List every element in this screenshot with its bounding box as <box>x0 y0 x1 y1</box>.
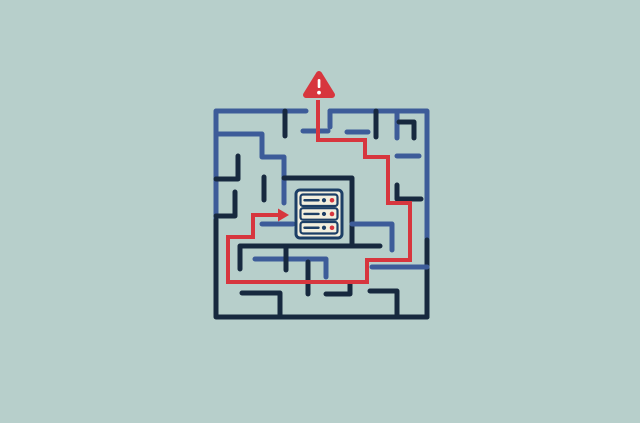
maze-illustration <box>0 0 640 423</box>
server-led-red <box>330 225 335 230</box>
illustration-canvas <box>0 0 640 423</box>
server-icon <box>296 190 342 238</box>
exclamation-dot <box>317 91 321 95</box>
server-led-red <box>330 198 335 203</box>
server-led-red <box>330 212 335 217</box>
server-led-navy <box>322 212 326 216</box>
server-led-navy <box>322 226 326 230</box>
exclamation-bar <box>318 79 321 88</box>
server-led-navy <box>322 198 326 202</box>
